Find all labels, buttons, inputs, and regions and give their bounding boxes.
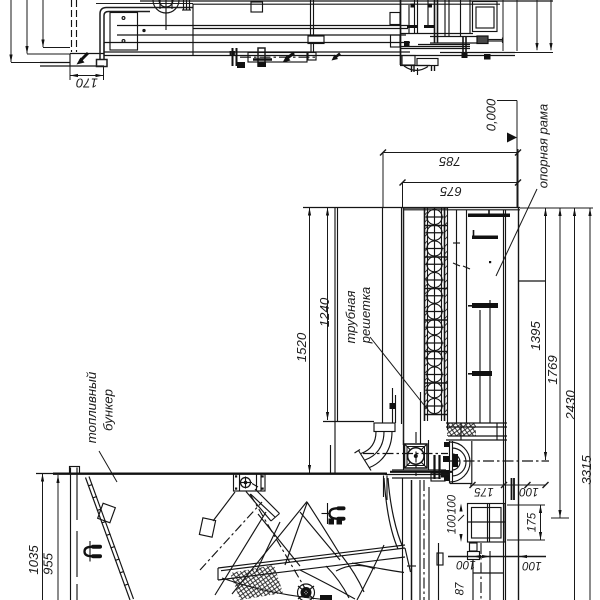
svg-text:170: 170 [75, 76, 97, 91]
svg-text:1240: 1240 [317, 297, 332, 327]
svg-text:785: 785 [438, 154, 460, 169]
svg-text:175: 175 [474, 485, 494, 497]
svg-text:955: 955 [41, 552, 56, 575]
svg-text:топливный: топливный [84, 371, 99, 443]
svg-text:87: 87 [455, 582, 467, 595]
svg-text:175: 175 [527, 512, 539, 532]
svg-text:100: 100 [447, 494, 459, 514]
svg-text:1769: 1769 [545, 355, 560, 385]
svg-text:трубная: трубная [343, 290, 358, 343]
svg-text:2430: 2430 [563, 390, 578, 421]
svg-text:100: 100 [456, 558, 476, 570]
svg-text:решетка: решетка [358, 287, 373, 345]
svg-text:опорная рама: опорная рама [536, 104, 551, 188]
svg-text:3315: 3315 [579, 455, 594, 485]
svg-text:бункер: бункер [101, 389, 116, 431]
svg-text:675: 675 [439, 184, 461, 199]
svg-text:100: 100 [519, 485, 539, 497]
svg-text:100: 100 [522, 559, 542, 571]
svg-text:1035: 1035 [26, 545, 41, 575]
svg-text:0,000: 0,000 [484, 98, 499, 131]
svg-text:1395: 1395 [528, 321, 543, 351]
svg-text:1520: 1520 [294, 332, 309, 362]
svg-text:100: 100 [447, 514, 459, 534]
